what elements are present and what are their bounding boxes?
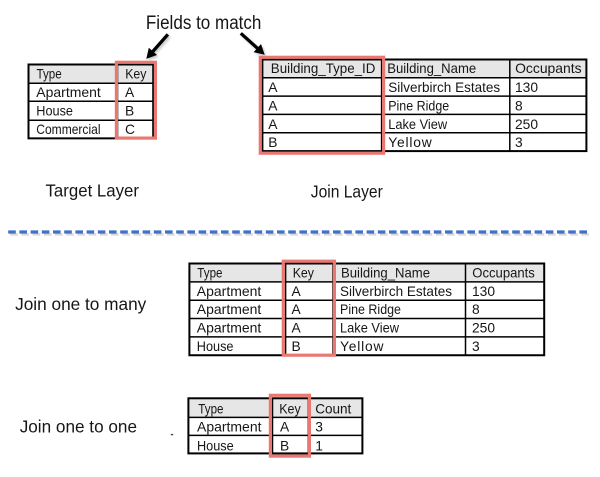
svg-text:A: A — [125, 85, 135, 100]
svg-text:A: A — [268, 117, 278, 132]
svg-text:Apartment: Apartment — [197, 420, 262, 435]
svg-text:Count: Count — [315, 401, 351, 416]
svg-text:B: B — [268, 135, 277, 150]
svg-text:B: B — [280, 438, 289, 453]
svg-text:Type: Type — [198, 401, 223, 416]
svg-text:Lake View: Lake View — [388, 117, 447, 132]
svg-text:Occupants: Occupants — [515, 61, 582, 76]
svg-text:Type: Type — [37, 67, 62, 82]
svg-text:Building_Name: Building_Name — [387, 61, 476, 76]
svg-text:130: 130 — [515, 80, 538, 95]
svg-text:Pine Ridge: Pine Ridge — [388, 99, 449, 114]
svg-text:Key: Key — [293, 266, 314, 281]
svg-text:3: 3 — [515, 135, 523, 150]
svg-text:130: 130 — [472, 284, 495, 299]
svg-text:Building_Name: Building_Name — [341, 266, 430, 281]
svg-text:Building_Type_ID: Building_Type_ID — [271, 61, 376, 76]
svg-text:A: A — [268, 80, 278, 95]
svg-text:Lake View: Lake View — [340, 321, 399, 336]
svg-text:A: A — [292, 284, 302, 299]
svg-text:Apartment: Apartment — [197, 321, 262, 336]
svg-text:Type: Type — [197, 266, 222, 281]
svg-text:Key: Key — [279, 401, 301, 416]
svg-text:B: B — [292, 339, 301, 354]
svg-text:Join one to one: Join one to one — [20, 416, 137, 436]
svg-text:Fields to match: Fields to match — [146, 13, 262, 34]
svg-text:A: A — [268, 99, 278, 114]
svg-text:1: 1 — [315, 438, 323, 453]
svg-text:House: House — [197, 438, 234, 453]
svg-text:8: 8 — [472, 302, 480, 317]
svg-text:Silverbirch Estates: Silverbirch Estates — [388, 80, 500, 95]
svg-text:B: B — [125, 104, 134, 119]
svg-text:Yellow: Yellow — [388, 135, 432, 150]
svg-text:Occupants: Occupants — [472, 266, 535, 281]
svg-text:Silverbirch Estates: Silverbirch Estates — [340, 284, 452, 299]
svg-text:250: 250 — [515, 117, 538, 132]
svg-text:3: 3 — [315, 420, 323, 435]
svg-text:House: House — [197, 339, 234, 354]
svg-text:Key: Key — [125, 67, 146, 82]
svg-text:Join Layer: Join Layer — [311, 182, 383, 202]
svg-text:Join one to many: Join one to many — [15, 294, 146, 314]
svg-text:Apartment: Apartment — [197, 284, 262, 299]
svg-text:Apartment: Apartment — [197, 302, 262, 317]
svg-text:C: C — [125, 122, 135, 137]
svg-text:Pine Ridge: Pine Ridge — [340, 302, 401, 317]
svg-text:Target Layer: Target Layer — [46, 181, 140, 201]
svg-text:House: House — [36, 104, 73, 119]
svg-text:Commercial: Commercial — [36, 122, 100, 137]
svg-text:A: A — [280, 420, 290, 435]
svg-text:250: 250 — [472, 321, 495, 336]
svg-text:8: 8 — [515, 99, 523, 114]
svg-text:A: A — [292, 321, 302, 336]
svg-text:A: A — [292, 302, 302, 317]
svg-text:Yellow: Yellow — [340, 339, 384, 354]
svg-text:3: 3 — [472, 339, 480, 354]
svg-text:Apartment: Apartment — [36, 85, 101, 100]
